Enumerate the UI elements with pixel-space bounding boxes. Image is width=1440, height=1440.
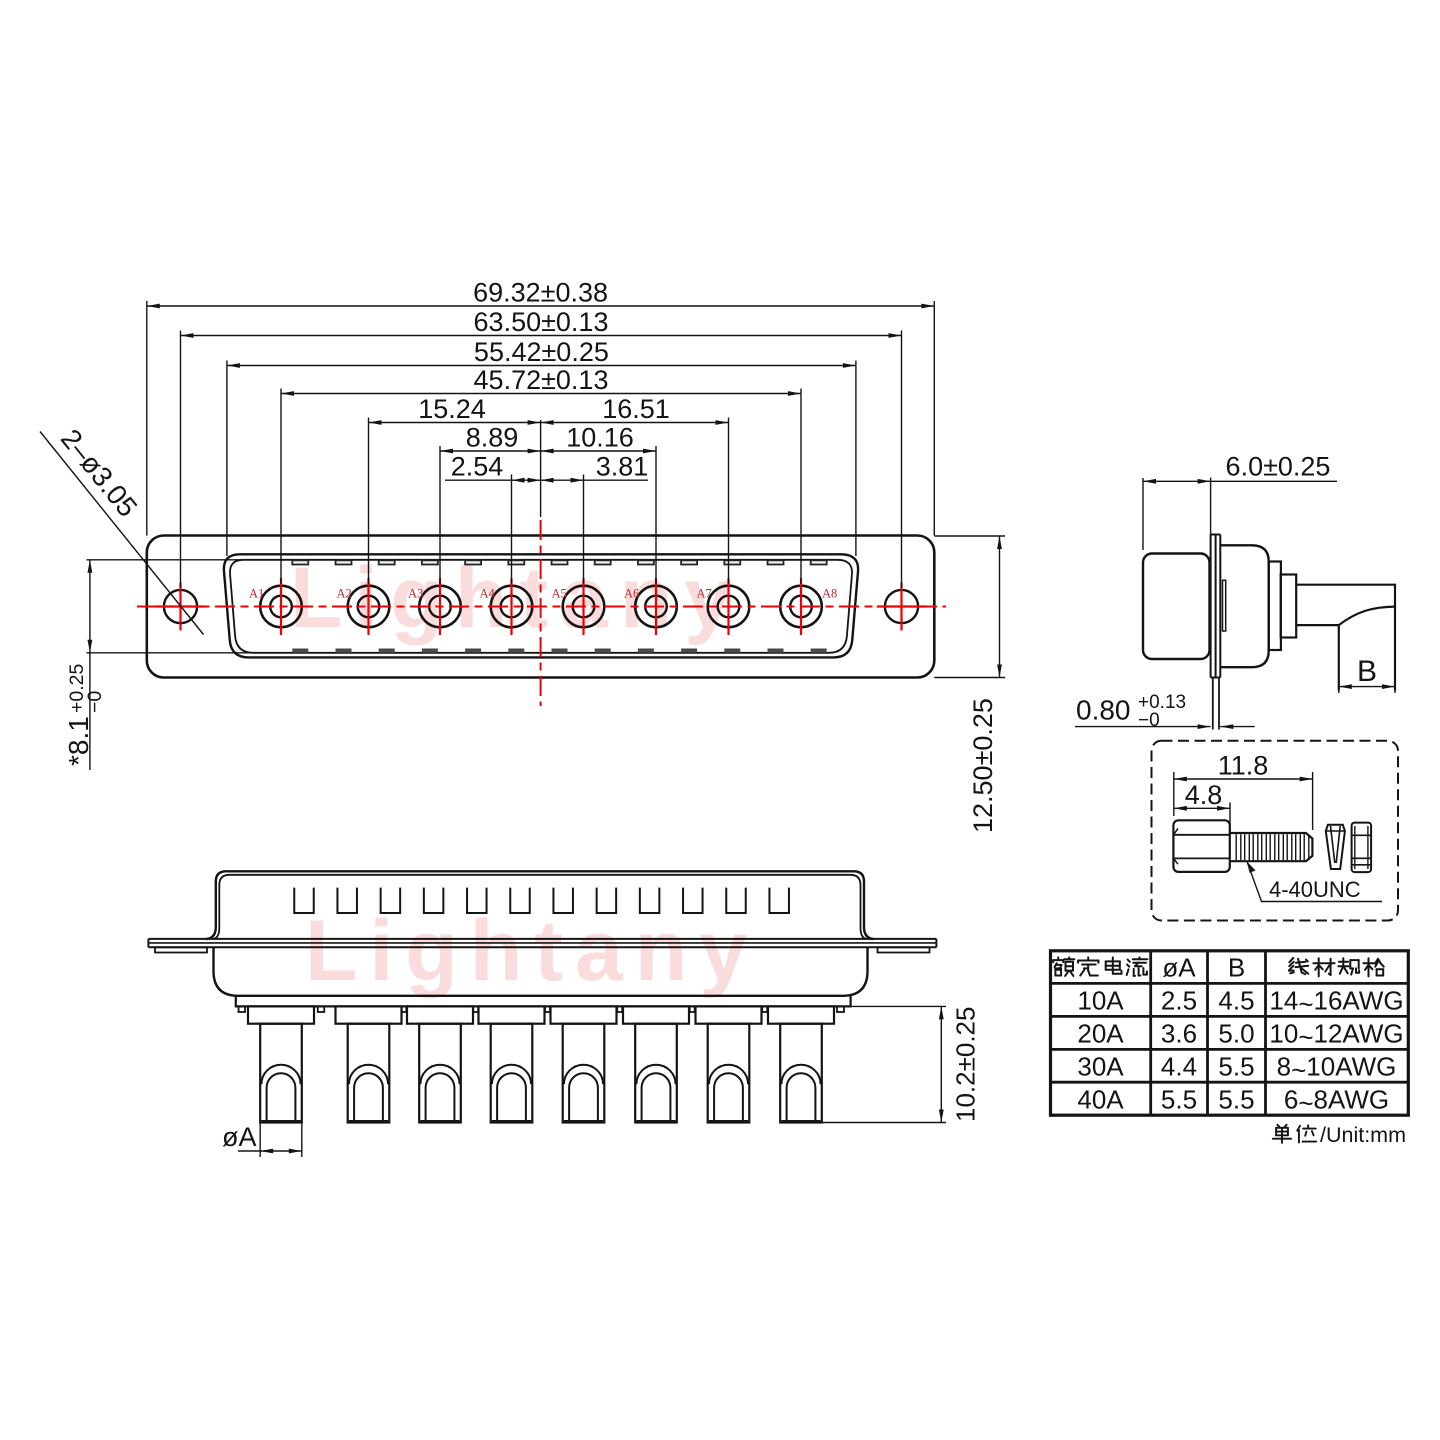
svg-text:A6: A6 (624, 587, 639, 601)
svg-text:40A: 40A (1077, 1084, 1124, 1114)
svg-text:8.89: 8.89 (466, 423, 519, 453)
svg-text:55.42±0.25: 55.42±0.25 (474, 337, 609, 367)
svg-text:12.50±0.25: 12.50±0.25 (968, 698, 998, 833)
svg-text:3.81: 3.81 (596, 452, 649, 482)
svg-text:30A: 30A (1077, 1052, 1124, 1082)
svg-text:/Unit:mm: /Unit:mm (1320, 1123, 1406, 1147)
svg-text:Lightany: Lightany (305, 903, 759, 999)
svg-text:4.8: 4.8 (1185, 780, 1223, 810)
svg-text:10.16: 10.16 (566, 423, 634, 453)
svg-text:0.80: 0.80 (1076, 695, 1131, 726)
svg-text:5.5: 5.5 (1218, 1052, 1254, 1082)
svg-text:2.54: 2.54 (451, 452, 504, 482)
svg-text:16.51: 16.51 (602, 394, 670, 424)
svg-text:*8.1: *8.1 (63, 716, 94, 766)
svg-text:øA: øA (222, 1122, 257, 1152)
svg-text:A8: A8 (822, 587, 837, 601)
svg-text:4.5: 4.5 (1218, 986, 1254, 1016)
svg-text:A2: A2 (337, 587, 352, 601)
svg-text:øA: øA (1162, 953, 1196, 983)
svg-text:A4: A4 (480, 587, 496, 601)
svg-text:B: B (1357, 655, 1377, 688)
svg-text:10.2±0.25: 10.2±0.25 (951, 1007, 981, 1122)
svg-text:A7: A7 (697, 587, 712, 601)
svg-text:−0: −0 (1138, 710, 1160, 731)
svg-text:8~10AWG: 8~10AWG (1277, 1052, 1397, 1086)
svg-text:4.4: 4.4 (1161, 1052, 1197, 1082)
svg-text:5.5: 5.5 (1218, 1084, 1254, 1114)
svg-text:6.0±0.25: 6.0±0.25 (1226, 451, 1331, 481)
svg-text:69.32±0.38: 69.32±0.38 (473, 278, 608, 308)
svg-text:10A: 10A (1077, 986, 1124, 1016)
svg-text:−0: −0 (84, 691, 106, 713)
svg-text:15.24: 15.24 (418, 394, 486, 424)
svg-text:B: B (1228, 953, 1245, 983)
svg-text:A3: A3 (408, 587, 423, 601)
svg-text:A5: A5 (552, 587, 567, 601)
svg-text:3.6: 3.6 (1161, 1019, 1197, 1049)
svg-text:45.72±0.13: 45.72±0.13 (474, 365, 609, 395)
svg-text:63.50±0.13: 63.50±0.13 (474, 307, 609, 337)
svg-text:20A: 20A (1077, 1019, 1124, 1049)
svg-text:4-40UNC: 4-40UNC (1269, 877, 1361, 902)
svg-text:5.5: 5.5 (1161, 1084, 1197, 1114)
svg-text:11.8: 11.8 (1218, 751, 1269, 781)
svg-text:2.5: 2.5 (1161, 986, 1197, 1016)
svg-text:10~12AWG: 10~12AWG (1269, 1019, 1403, 1053)
svg-text:A1: A1 (249, 587, 264, 601)
svg-text:5.0: 5.0 (1218, 1019, 1254, 1049)
svg-text:14~16AWG: 14~16AWG (1269, 986, 1403, 1020)
svg-text:6~8AWG: 6~8AWG (1284, 1084, 1389, 1118)
